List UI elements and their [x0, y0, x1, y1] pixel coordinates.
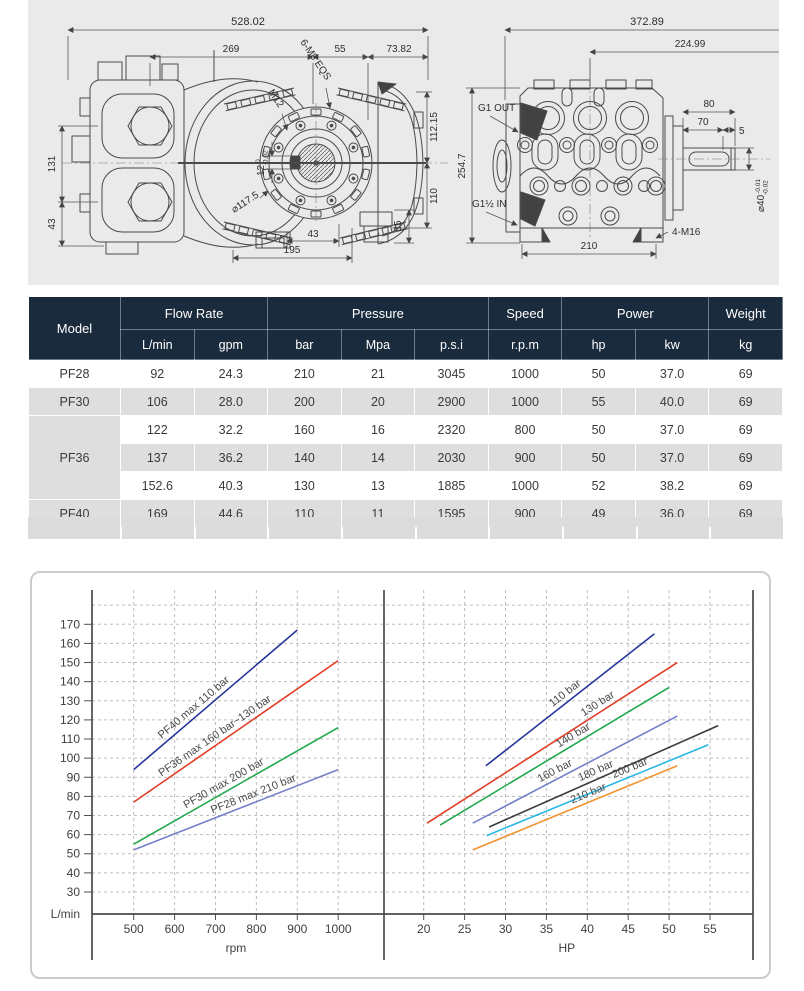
- side-view-drawing: [62, 50, 448, 254]
- y-tick-label: 50: [67, 847, 81, 861]
- specs-table: Model Flow Rate Pressure Speed Power Wei…: [28, 296, 783, 528]
- x-tick-label: 45: [622, 922, 636, 936]
- y-tick-label: 170: [60, 617, 80, 631]
- x-tick-label: 55: [703, 922, 717, 936]
- table-cell: 69: [709, 416, 783, 444]
- x-tick-label: 25: [458, 922, 472, 936]
- flow-performance-chart: 5006007008009001000202530354045505530405…: [32, 573, 769, 977]
- table-cell: 21: [341, 360, 415, 388]
- header-flow-rate: Flow Rate: [121, 297, 268, 330]
- table-cell: 200: [268, 388, 342, 416]
- table-cell: 106: [121, 388, 195, 416]
- dim-bottom-small: 43: [307, 229, 319, 240]
- x-tick-label: 40: [581, 922, 595, 936]
- model-cell: PF28: [29, 360, 121, 388]
- housing-rib: [255, 95, 265, 103]
- table-cell: 1000: [488, 360, 562, 388]
- y-axis-unit-label: L/min: [51, 907, 80, 921]
- unit-lmin: L/min: [121, 330, 195, 360]
- dim-bottom-span: 195: [284, 245, 301, 256]
- dim-foot-span: 210: [581, 241, 598, 252]
- table-cell: 37.0: [635, 416, 709, 444]
- empty-cell: [417, 517, 489, 539]
- empty-cell: [28, 517, 120, 539]
- dim-right-lower: 110: [429, 188, 440, 204]
- pump-spec-sheet: 528.02 269 55 73.82 131 43 112.15 110 35…: [0, 0, 804, 991]
- housing-rib: [241, 99, 251, 107]
- empty-cell: [269, 517, 341, 539]
- unit-kg: kg: [709, 330, 783, 360]
- x-tick-label: 50: [662, 922, 676, 936]
- table-cell: 14: [341, 444, 415, 472]
- x-tick-label: 900: [287, 922, 307, 936]
- dim-left-foot: 43: [47, 218, 58, 230]
- y-tick-label: 140: [60, 675, 80, 689]
- y-tick-label: 150: [60, 656, 80, 670]
- label-flange-dia: ⌀117.5: [230, 190, 262, 216]
- label-shaft-dia: ⌀40-0.01-0.02: [755, 179, 770, 212]
- x-tick-label: 30: [499, 922, 513, 936]
- table-cell: 69: [709, 472, 783, 500]
- table-cell: 40.0: [635, 388, 709, 416]
- y-tick-label: 130: [60, 694, 80, 708]
- unit-bar: bar: [268, 330, 342, 360]
- x-axis-label-rpm: rpm: [226, 941, 247, 955]
- table-cell: 160: [268, 416, 342, 444]
- table-cell: 55: [562, 388, 636, 416]
- table-cell: 1000: [488, 388, 562, 416]
- table-cell: 900: [488, 444, 562, 472]
- table-cell: 3045: [415, 360, 489, 388]
- dim-key-length: 70: [697, 117, 709, 128]
- dim-foot-height: 35: [393, 220, 404, 232]
- x-axis-label-hp: HP: [559, 941, 576, 955]
- table-cell: 32.2: [194, 416, 268, 444]
- y-tick-label: 100: [60, 751, 80, 765]
- table-cell: 24.3: [194, 360, 268, 388]
- dim-overall-width: 372.89: [630, 16, 664, 28]
- y-tick-label: 80: [67, 789, 81, 803]
- y-tick-label: 120: [60, 713, 80, 727]
- chart-series: PF40 max 110 barPF36 max 160 bar~130 bar…: [134, 630, 718, 850]
- empty-table-row: [28, 517, 783, 539]
- x-tick-label: 500: [124, 922, 144, 936]
- empty-cell: [711, 517, 783, 539]
- header-model: Model: [29, 297, 121, 360]
- header-pressure: Pressure: [268, 297, 489, 330]
- table-cell: 52: [562, 472, 636, 500]
- empty-cell: [196, 517, 268, 539]
- table-row: PF289224.321021304510005037.069: [29, 360, 783, 388]
- dim-shaft-length: 80: [703, 99, 715, 110]
- dim-flange-offset: 55: [334, 44, 346, 55]
- header-weight: Weight: [709, 297, 783, 330]
- table-cell: 50: [562, 360, 636, 388]
- table-cell: 69: [709, 360, 783, 388]
- table-header-unit-row: L/min gpm bar Mpa p.s.i r.p.m hp kw kg: [29, 330, 783, 360]
- table-cell: 2320: [415, 416, 489, 444]
- table-row: PF3612232.21601623208005037.069: [29, 416, 783, 444]
- table-row: 152.640.313013188510005238.269: [29, 472, 783, 500]
- table-cell: 20: [341, 388, 415, 416]
- table-cell: 122: [121, 416, 195, 444]
- table-cell: 140: [268, 444, 342, 472]
- table-cell: 1000: [488, 472, 562, 500]
- header-power: Power: [562, 297, 709, 330]
- series-line-180-bar: [489, 726, 718, 827]
- x-tick-label: 35: [540, 922, 554, 936]
- x-tick-label: 600: [165, 922, 185, 936]
- y-tick-label: 110: [61, 732, 80, 746]
- unit-mpa: Mpa: [341, 330, 415, 360]
- table-cell: 36.2: [194, 444, 268, 472]
- table-cell: 37.0: [635, 360, 709, 388]
- dim-overall-height: 254.7: [457, 153, 468, 178]
- table-cell: 38.2: [635, 472, 709, 500]
- table-cell: 50: [562, 444, 636, 472]
- empty-cell: [343, 517, 415, 539]
- label-inlet: G1½ IN: [472, 199, 506, 210]
- table-cell: 50: [562, 416, 636, 444]
- y-tick-label: 60: [67, 828, 81, 842]
- table-cell: 92: [121, 360, 195, 388]
- x-tick-label: 20: [417, 922, 431, 936]
- y-tick-label: 70: [67, 809, 81, 823]
- y-tick-label: 30: [67, 885, 81, 899]
- dim-mid-length: 269: [223, 44, 240, 55]
- engineering-drawings-panel: 528.02 269 55 73.82 131 43 112.15 110 35…: [28, 0, 779, 285]
- dim-shaft-end: 5: [739, 126, 745, 137]
- table-cell: 800: [488, 416, 562, 444]
- label-outlet: G1 OUT: [478, 103, 515, 114]
- unit-hp: hp: [562, 330, 636, 360]
- table-cell: 40.3: [194, 472, 268, 500]
- unit-gpm: gpm: [194, 330, 268, 360]
- front-view-drawing: [493, 60, 770, 242]
- chart-axes: [84, 590, 753, 960]
- y-tick-label: 90: [67, 770, 81, 784]
- table-cell: 2030: [415, 444, 489, 472]
- table-cell: 137: [121, 444, 195, 472]
- table-header-group-row: Model Flow Rate Pressure Speed Power Wei…: [29, 297, 783, 330]
- table-cell: 130: [268, 472, 342, 500]
- housing-rib: [227, 102, 237, 110]
- empty-cell: [490, 517, 562, 539]
- pump-drawings: 528.02 269 55 73.82 131 43 112.15 110 35…: [28, 0, 779, 285]
- table-cell: 1885: [415, 472, 489, 500]
- performance-chart-panel: 5006007008009001000202530354045505530405…: [30, 571, 771, 979]
- table-cell: 69: [709, 388, 783, 416]
- model-cell: PF30: [29, 388, 121, 416]
- table-cell: 13: [341, 472, 415, 500]
- dim-left-height: 131: [47, 155, 58, 172]
- dim-overall-length: 528.02: [231, 16, 265, 28]
- table-cell: 210: [268, 360, 342, 388]
- unit-psi: p.s.i: [415, 330, 489, 360]
- empty-cell: [122, 517, 194, 539]
- empty-cell: [564, 517, 636, 539]
- label-foot-bolts: 4-M16: [672, 227, 701, 238]
- empty-cell: [638, 517, 710, 539]
- table-cell: 69: [709, 444, 783, 472]
- table-cell: 37.0: [635, 444, 709, 472]
- unit-kw: kw: [635, 330, 709, 360]
- x-tick-label: 800: [246, 922, 266, 936]
- table-cell: 28.0: [194, 388, 268, 416]
- x-tick-label: 1000: [325, 922, 352, 936]
- y-tick-label: 160: [60, 636, 80, 650]
- dim-inner-width: 224.99: [675, 39, 706, 50]
- series-line-pf30-max-200-bar: [134, 728, 339, 845]
- y-tick-label: 40: [67, 866, 81, 880]
- table-cell: 152.6: [121, 472, 195, 500]
- x-tick-label: 700: [205, 922, 225, 936]
- dim-end-length: 73.82: [386, 44, 411, 55]
- header-speed: Speed: [488, 297, 562, 330]
- dim-right-upper: 112.15: [429, 112, 440, 142]
- table-row: PF3010628.020020290010005540.069: [29, 388, 783, 416]
- unit-rpm: r.p.m: [488, 330, 562, 360]
- model-cell: PF36: [29, 416, 121, 500]
- table-cell: 2900: [415, 388, 489, 416]
- label-bolt-pattern: 6-M8 EQS: [298, 38, 333, 83]
- table-cell: 16: [341, 416, 415, 444]
- table-row: 13736.21401420309005037.069: [29, 444, 783, 472]
